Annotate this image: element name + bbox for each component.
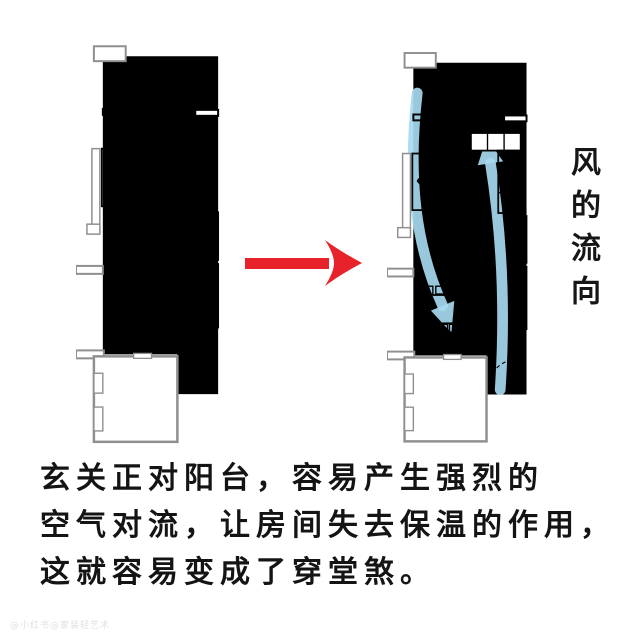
floorplan-before: 家装轻艺术 — [76, 42, 240, 466]
caption-line-2: 空气对流，让房间失去保温的作用， — [40, 502, 640, 549]
infographic-canvas: { "colors": { "room_fill": "#f3c6a9", "p… — [0, 0, 641, 640]
floorplan-after-drawing: 家装轻艺术 — [387, 45, 548, 465]
caption-line-3: 这就容易变成了穿堂煞。 — [40, 549, 640, 596]
red-arrow-icon — [243, 238, 365, 288]
wind-direction-label: 风的流向 — [560, 146, 604, 336]
caption: 玄关正对阳台，容易产生强烈的 空气对流，让房间失去保温的作用， 这就容易变成了穿… — [40, 455, 640, 596]
transition-arrow — [243, 238, 365, 292]
floorplan-after: 家装轻艺术 — [387, 45, 548, 469]
floorplan-before-drawing: 家装轻艺术 — [76, 42, 240, 462]
footer-watermark: @小红书@家装轻艺术 — [10, 618, 110, 631]
caption-line-1: 玄关正对阳台，容易产生强烈的 — [40, 455, 640, 502]
